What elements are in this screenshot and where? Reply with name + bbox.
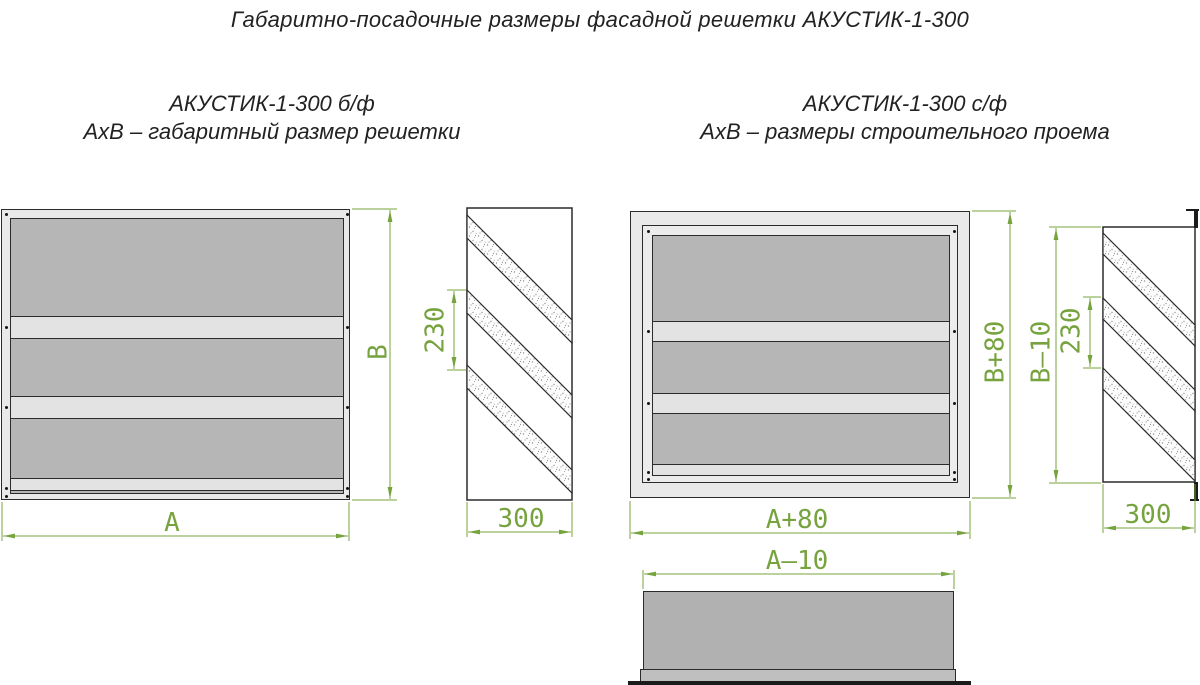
screw-dot <box>5 487 8 490</box>
screw-dot <box>647 402 650 405</box>
screw-dot <box>953 230 956 233</box>
grille-bar <box>652 464 950 476</box>
right-variant-header: АКУСТИК-1-300 с/ф АхВ – размеры строител… <box>670 90 1140 146</box>
grille-bar <box>652 321 950 342</box>
screw-dot <box>953 330 956 333</box>
flange-tab-bottom <box>1190 482 1199 501</box>
screw-dot <box>953 402 956 405</box>
grille-bar <box>10 478 344 491</box>
screw-dot <box>647 330 650 333</box>
right-variant-caption: АхВ – размеры строительного проема <box>670 118 1140 146</box>
grille-bar <box>10 316 344 339</box>
dim-b80-label: В+80 <box>981 321 1011 384</box>
screw-dot <box>953 471 956 474</box>
dim-b10-label: В–10 <box>1027 321 1057 384</box>
grille-frame <box>642 225 958 483</box>
dim-b-label: В <box>364 344 394 360</box>
screw-dot <box>5 406 8 409</box>
slat-band <box>1103 233 1195 346</box>
dim-pitch-left-label: 230 <box>421 307 451 354</box>
left-variant-title: АКУСТИК-1-300 б/ф <box>37 90 507 118</box>
dim-depth-right-label: 300 <box>1125 500 1172 530</box>
slat-band <box>467 290 572 418</box>
screw-dot <box>5 213 8 216</box>
screw-dot <box>346 213 349 216</box>
screw-dot <box>647 471 650 474</box>
dim-a80-label: А+80 <box>766 505 829 535</box>
grille-panel <box>652 235 950 475</box>
screw-dot <box>346 495 349 498</box>
left-variant-caption: АхВ – габаритный размер решетки <box>37 118 507 146</box>
bottom-view-flange-bar <box>628 681 971 685</box>
left-variant-header: АКУСТИК-1-300 б/ф АхВ – габаритный разме… <box>37 90 507 146</box>
dim-depth-left-label: 300 <box>498 504 545 534</box>
slat-band <box>467 215 572 343</box>
screw-dot <box>5 326 8 329</box>
screw-dot <box>647 478 650 481</box>
flange-tab-top <box>1186 209 1199 228</box>
page-title: Габаритно-посадочные размеры фасадной ре… <box>0 7 1200 33</box>
screw-dot <box>953 478 956 481</box>
dim-a-label: А <box>164 508 180 538</box>
slat-band <box>1103 368 1195 481</box>
right-variant-title: АКУСТИК-1-300 с/ф <box>670 90 1140 118</box>
grille-bar <box>10 396 344 419</box>
slat-band <box>1103 298 1195 411</box>
slat-band <box>467 365 572 493</box>
grille-panel <box>10 218 344 494</box>
screw-dot <box>346 406 349 409</box>
left-front-view <box>1 209 350 500</box>
dim-pitch-right-label: 230 <box>1057 308 1087 355</box>
grille-bar <box>652 393 950 414</box>
screw-dot <box>5 495 8 498</box>
bottom-view-body <box>643 591 954 670</box>
screw-dot <box>346 326 349 329</box>
right-side-view <box>1103 209 1199 501</box>
screw-dot <box>647 230 650 233</box>
screw-dot <box>346 487 349 490</box>
dim-a10-label: А–10 <box>766 546 829 576</box>
right-front-view <box>630 211 970 498</box>
left-side-view <box>467 208 572 500</box>
